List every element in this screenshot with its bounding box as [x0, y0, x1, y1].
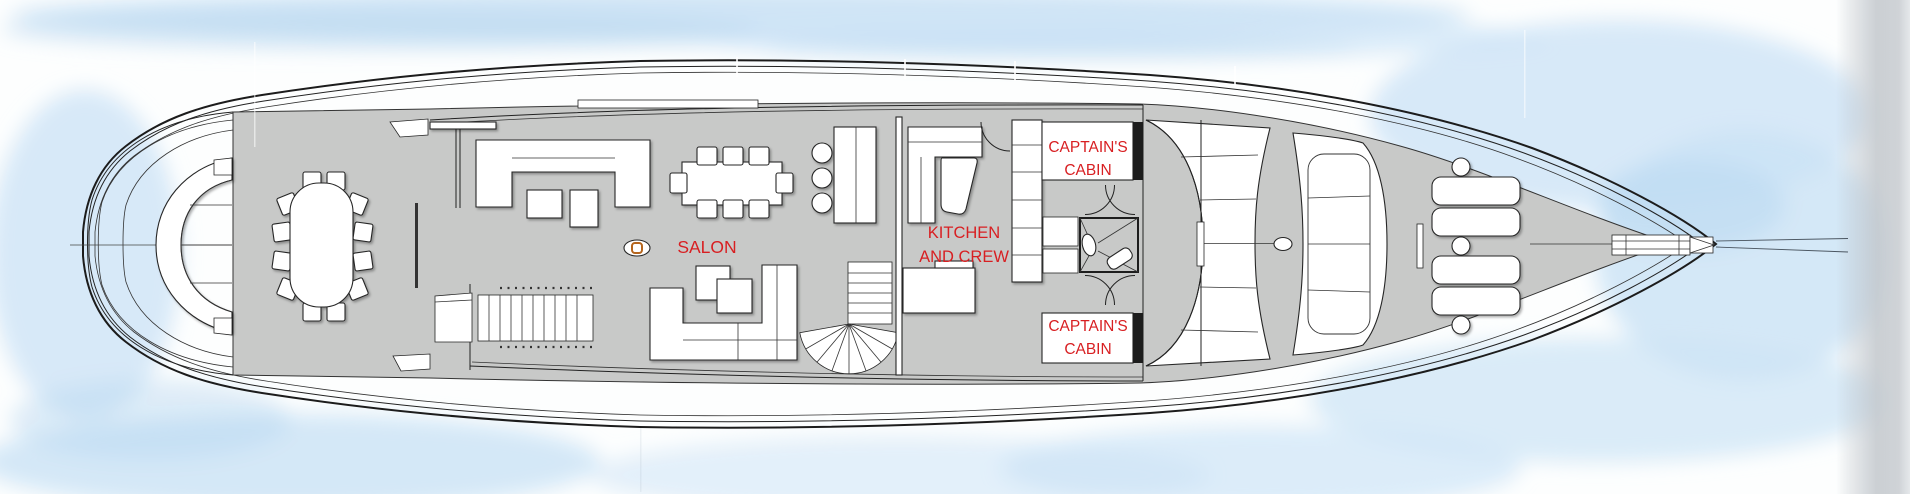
bar-stool	[812, 168, 832, 188]
helm-mark	[1274, 238, 1292, 251]
side-table	[717, 279, 752, 313]
yacht-deck-plan: SALON KITCHEN AND CREW CAPTAIN'S CABIN C…	[0, 0, 1910, 494]
dining-chair	[697, 200, 717, 218]
dining-chair	[670, 173, 687, 193]
dining-chair	[272, 251, 292, 271]
stair-run	[478, 295, 593, 341]
dining-chair	[353, 222, 373, 242]
crease-line	[640, 428, 642, 492]
crease-line	[254, 42, 256, 147]
partition-wall	[896, 117, 902, 375]
bar-stool	[812, 143, 832, 163]
bow-sunpad	[1432, 256, 1520, 284]
stanchion-tick	[1234, 66, 1236, 88]
dining-chair	[272, 222, 292, 242]
dining-chair	[723, 147, 743, 165]
windlass	[1612, 235, 1690, 255]
aft-glass-door	[415, 203, 418, 288]
vanity-counter	[1043, 217, 1078, 246]
dining-chair	[749, 147, 769, 165]
yacht-deck-plan-page: SALON KITCHEN AND CREW CAPTAIN'S CABIN C…	[0, 0, 1910, 494]
salon-dining-table	[682, 162, 782, 205]
label-kitchen-line1: KITCHEN	[928, 224, 1000, 242]
bow-fitting	[1690, 237, 1713, 253]
page-edge-shade	[1836, 0, 1910, 494]
stanchion-tick	[736, 57, 738, 77]
label-salon: SALON	[677, 237, 736, 257]
bow-table	[1452, 237, 1470, 255]
dining-chair	[749, 200, 769, 218]
bow-sunpad	[1432, 287, 1520, 315]
bow-sunpad	[1432, 177, 1520, 205]
dining-chair	[697, 147, 717, 165]
cabinet-column	[1012, 120, 1042, 282]
dining-chair	[723, 200, 743, 218]
bow-sunpad	[1432, 208, 1520, 236]
side-deck-stairs	[435, 288, 594, 347]
coffee-table	[527, 190, 562, 218]
label-kitchen-line2: AND CREW	[919, 248, 1009, 266]
cabin-wall	[1133, 122, 1143, 180]
coffee-table	[570, 190, 598, 227]
bow-table	[1452, 158, 1470, 176]
vanity-counter	[1043, 249, 1078, 273]
stanchion-tick	[1014, 61, 1016, 81]
stanchion-tick	[904, 59, 906, 79]
door-handle	[1197, 222, 1204, 266]
dining-chair	[776, 173, 793, 193]
skylight	[578, 100, 758, 108]
label-captains-cabin-fwd-line2: CABIN	[1064, 162, 1111, 179]
credenza	[430, 122, 496, 129]
dining-chair	[353, 251, 373, 271]
bow-table	[1452, 316, 1470, 334]
bar-stool	[812, 193, 832, 213]
label-captains-cabin-aft-line1: CAPTAIN'S	[1048, 318, 1127, 335]
bar-counter	[834, 127, 876, 223]
hatch-handle	[1417, 224, 1423, 268]
galley-counter	[903, 268, 975, 313]
cabin-wall	[1133, 313, 1143, 363]
aft-dining-table	[290, 183, 353, 307]
aft-corner-step	[214, 318, 232, 335]
label-captains-cabin-fwd-line1: CAPTAIN'S	[1048, 139, 1127, 156]
label-captains-cabin-aft-line2: CABIN	[1064, 341, 1111, 358]
aft-corner-step	[214, 158, 232, 175]
crease-line	[1524, 30, 1526, 118]
